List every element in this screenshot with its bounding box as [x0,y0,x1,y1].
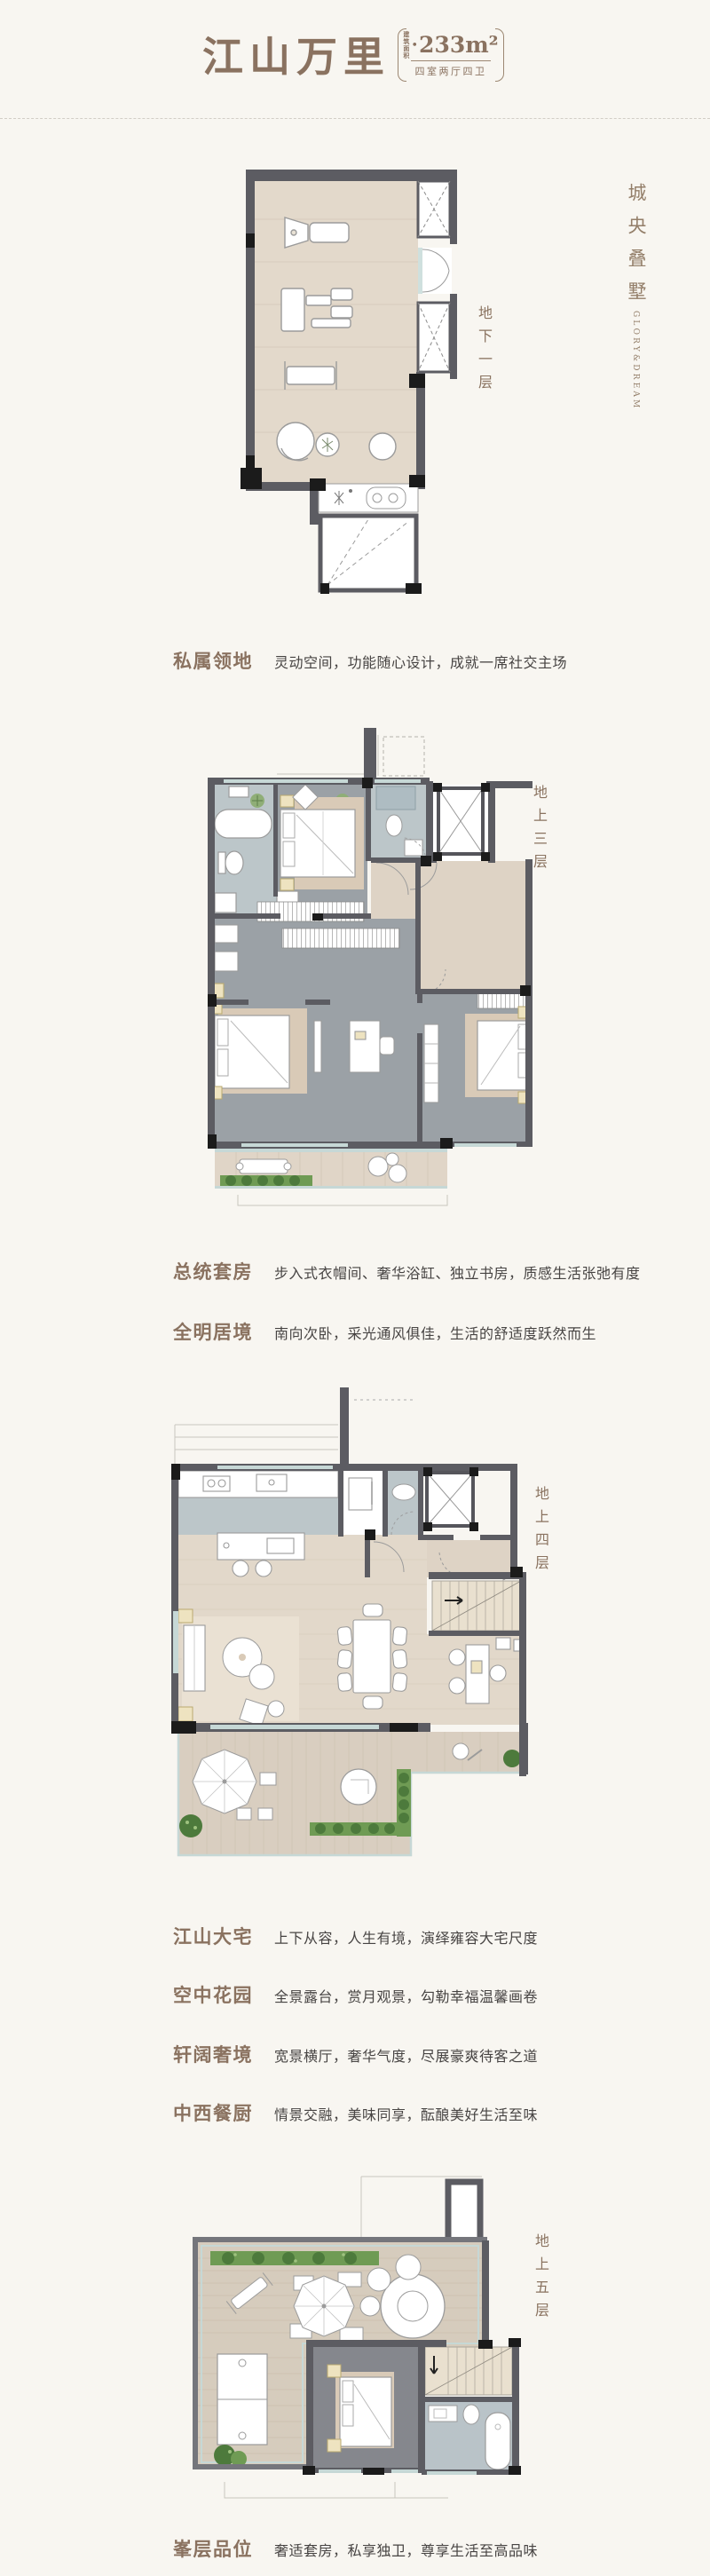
room-layout: 四室两厅四卫 [409,64,493,78]
feature-desc: 上下从容，人生有境，演绎雍容大宅尺度 [274,1926,538,1948]
feature-title: 总统套房 [173,1258,253,1284]
staircase [425,2347,512,2395]
balcony [215,1149,447,1189]
area-spec: 建筑 面积 • 233m² 四室两厅四卫 [398,28,504,82]
feature-desc: 情景交融，美味同享，酝酿美好生活至味 [274,2103,538,2124]
brochure-page: 江山万里 建筑 面积 • 233m² 四室两厅四卫 城央叠墅 GLORY&DRE… [0,0,710,2576]
feature-row-mansion: 江山大宅 上下从容，人生有境，演绎雍容大宅尺度 [173,1923,538,1949]
stairwell [320,516,416,590]
staircase [432,1581,521,1631]
sofa-area [178,1609,299,1727]
brand-vertical-en: GLORY&DREAM [631,311,640,410]
roof-lines [175,1400,413,1464]
plan-outline-bracket [238,1195,447,1205]
feature-title: 中西餐厨 [173,2099,253,2126]
feature-desc: 奢适套房，私享独卫，尊享生活至高品味 [274,2539,538,2560]
feature-desc: 步入式衣帽间、奢华浴缸、独立书房，质感生活张弛有度 [274,1261,641,1283]
dashed-divider [0,118,710,119]
elevator [438,788,483,854]
bedroom-two [209,1001,307,1099]
feature-title: 江山大宅 [173,1923,253,1949]
suite-bathroom [425,2402,512,2469]
feature-row-private: 私属领地 灵动空间，功能随心设计，成就一席社交主场 [173,647,567,674]
area-value: 233m² [419,33,499,58]
skylight-box [448,2182,480,2240]
spec-divider [411,60,491,61]
feature-title: 轩阔奢境 [173,2041,253,2067]
area-bullet: • [411,39,418,52]
plan-outline-bracket [225,2482,448,2498]
feature-row-peak: 峯层品位 奢适套房，私享独卫，尊享生活至高品味 [173,2535,538,2562]
roof-outline [277,735,424,776]
floor-label-5f: 地上五层 [530,2233,551,2326]
feature-desc: 宽景横厅，奢华气度，尽展豪爽待客之道 [274,2044,538,2066]
feature-row-bright: 全明居境 南向次卧，采光通风俱佳，生活的舒适度跃然而生 [173,1318,596,1345]
brand-vertical-cn: 城央叠墅 [623,183,650,314]
floorplan-basement [235,162,501,606]
area-spec-content: 建筑 面积 • 233m² 四室两厅四卫 [409,31,493,78]
laundry-room [319,484,418,512]
feature-title: 空中花园 [173,1981,253,2008]
bedroom-three [465,1007,531,1103]
feature-row-garden: 空中花园 全景露台，赏月观景，勾勒幸福温馨画卷 [173,1981,538,2008]
elevator [427,1473,473,1526]
feature-title: 私属领地 [173,647,253,674]
feature-title: 峯层品位 [173,2535,253,2562]
suite-bedroom [313,2347,418,2469]
terrace [178,1732,523,1855]
feature-desc: 灵动空间，功能随心设计，成就一席社交主场 [274,651,567,672]
feature-row-kitchen: 中西餐厨 情景交融，美味同享，酝酿美好生活至味 [173,2099,538,2126]
page-title: 江山万里 [202,25,390,83]
floorplan-third-floor [188,728,534,1212]
feature-desc: 全景露台，赏月观景，勾勒幸福温馨画卷 [274,1985,538,2006]
floorplan-fourth-floor [164,1371,537,1860]
feature-row-suite: 总统套房 步入式衣帽间、奢华浴缸、独立书房，质感生活张弛有度 [173,1258,641,1284]
feature-title: 全明居境 [173,1318,253,1345]
floorplan-fifth-floor [189,2173,526,2515]
feature-desc: 南向次卧，采光通风俱佳，生活的舒适度跃然而生 [274,1322,596,1343]
master-bedroom [280,785,364,890]
entry-door [418,248,452,294]
feature-row-living: 轩阔奢境 宽景横厅，奢华气度，尽展豪爽待客之道 [173,2041,538,2067]
area-label: 建筑 面积 [403,31,410,59]
